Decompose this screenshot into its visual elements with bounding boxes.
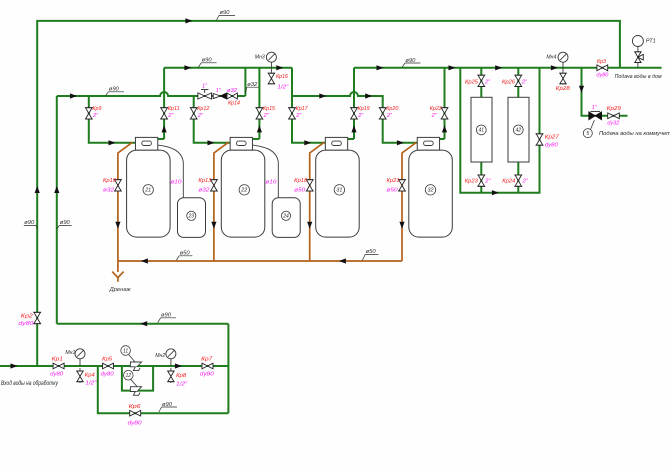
svg-text:Кр14: Кр14: [228, 101, 240, 107]
svg-text:Кр8: Кр8: [176, 373, 187, 379]
svg-text:2″: 2″: [521, 80, 528, 86]
svg-text:41: 41: [479, 128, 485, 134]
svg-text:11: 11: [123, 348, 128, 354]
svg-text:Мн4: Мн4: [546, 54, 556, 60]
svg-text:2″: 2″: [263, 113, 270, 119]
svg-text:Кр26: Кр26: [502, 80, 516, 86]
svg-text:dy80: dy80: [18, 321, 34, 327]
svg-text:22: 22: [240, 188, 247, 194]
svg-text:dy80: dy80: [545, 142, 559, 148]
svg-text:dy80: dy80: [50, 371, 64, 377]
svg-text:Кр6: Кр6: [129, 404, 142, 410]
svg-text:Кр16: Кр16: [276, 74, 289, 80]
svg-text:Кр19: Кр19: [358, 106, 370, 112]
svg-text:Подача воды в дом: Подача воды в дом: [615, 74, 662, 80]
svg-text:32: 32: [428, 188, 434, 194]
svg-text:ø10: ø10: [265, 179, 277, 185]
svg-text:dy80: dy80: [128, 420, 143, 426]
svg-text:Кр9: Кр9: [92, 106, 101, 112]
svg-text:Подача воды на коммучет: Подача воды на коммучет: [599, 131, 670, 137]
svg-text:Мн2: Мн2: [155, 353, 165, 359]
svg-text:Кр10: Кр10: [103, 178, 117, 184]
svg-text:2″: 2″: [197, 113, 204, 119]
svg-text:2″: 2″: [431, 113, 438, 119]
svg-text:ø50: ø50: [387, 188, 399, 194]
svg-text:1/2″: 1/2″: [277, 84, 289, 90]
svg-text:Кр22: Кр22: [430, 106, 443, 112]
svg-text:Кр15: Кр15: [263, 106, 276, 112]
svg-text:ø32: ø32: [103, 188, 115, 194]
svg-text:ø32: ø32: [198, 188, 210, 194]
svg-text:Кр13: Кр13: [198, 178, 212, 184]
svg-text:Кр18: Кр18: [294, 178, 308, 184]
svg-text:2″: 2″: [522, 179, 529, 185]
svg-text:21: 21: [144, 188, 151, 194]
svg-text:Кр4: Кр4: [85, 373, 95, 379]
svg-text:2″: 2″: [92, 113, 99, 119]
svg-text:Кр20: Кр20: [386, 106, 399, 112]
svg-text:ø32: ø32: [227, 88, 238, 94]
svg-text:Кр2: Кр2: [21, 314, 34, 320]
svg-text:Вход воды на обработку: Вход воды на обработку: [1, 381, 59, 387]
svg-text:Мн3: Мн3: [255, 54, 266, 60]
svg-text:Кр27: Кр27: [545, 135, 560, 141]
svg-text:dy80: dy80: [101, 371, 115, 377]
svg-text:ø50: ø50: [294, 188, 306, 194]
svg-text:Кр21: Кр21: [387, 178, 400, 184]
svg-text:dy80: dy80: [200, 371, 215, 377]
svg-text:42: 42: [516, 128, 522, 134]
svg-text:12: 12: [126, 373, 132, 379]
svg-text:Кр17: Кр17: [296, 106, 309, 112]
svg-text:Кр11: Кр11: [168, 106, 180, 112]
svg-text:Мн1: Мн1: [65, 350, 75, 356]
svg-text:Кр7: Кр7: [201, 357, 213, 363]
svg-text:23: 23: [188, 214, 195, 220]
svg-text:5: 5: [586, 131, 589, 137]
svg-text:2″: 2″: [167, 113, 174, 119]
svg-text:1/2″: 1/2″: [176, 382, 188, 388]
svg-text:2″: 2″: [295, 113, 302, 119]
svg-text:2″: 2″: [484, 179, 491, 185]
svg-text:Кр24: Кр24: [502, 179, 515, 185]
svg-text:Кр5: Кр5: [102, 357, 113, 363]
svg-text:Кр12: Кр12: [197, 106, 210, 112]
svg-text:ø10: ø10: [170, 179, 182, 185]
svg-text:2″: 2″: [484, 80, 491, 86]
svg-text:dy80: dy80: [596, 73, 609, 79]
svg-text:РТ1: РТ1: [646, 38, 656, 44]
svg-text:Кр29: Кр29: [607, 106, 621, 112]
svg-text:Кр23: Кр23: [465, 179, 479, 185]
svg-text:31: 31: [336, 188, 342, 194]
svg-text:24: 24: [282, 214, 289, 220]
svg-text:2″: 2″: [357, 113, 364, 119]
svg-text:2″: 2″: [386, 113, 393, 119]
svg-text:Кр1: Кр1: [52, 357, 63, 363]
svg-text:Кр3: Кр3: [597, 59, 607, 65]
svg-text:1/2″: 1/2″: [85, 380, 97, 386]
svg-text:dy32: dy32: [607, 121, 620, 127]
svg-text:Дренаж: Дренаж: [109, 287, 132, 293]
svg-text:Кр28: Кр28: [556, 86, 571, 92]
svg-text:Кр25: Кр25: [465, 80, 479, 86]
